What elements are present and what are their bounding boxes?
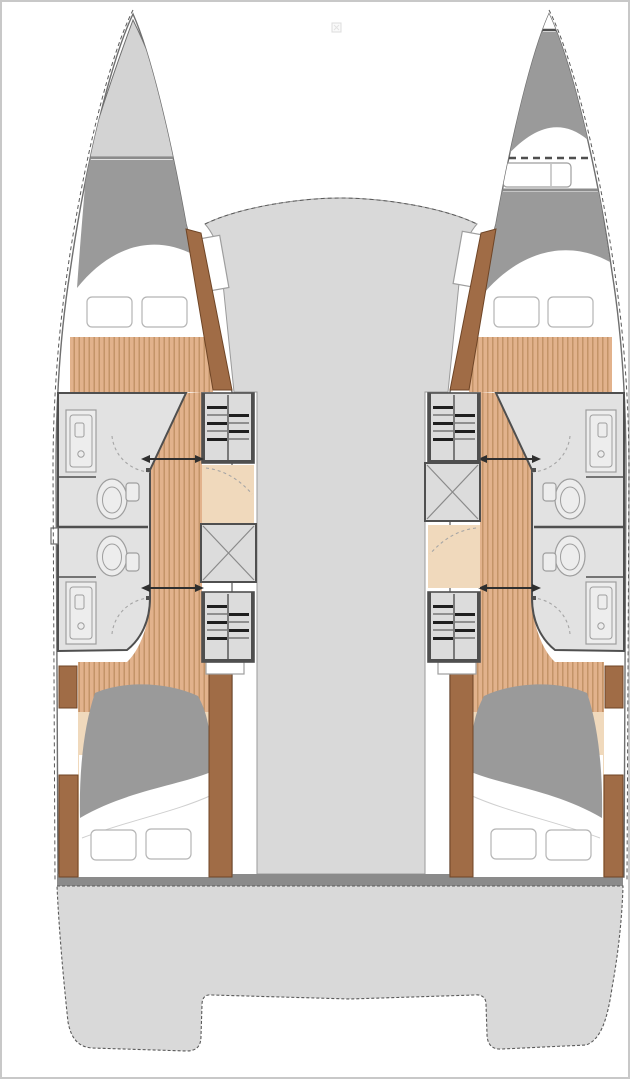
starboard-storage-locker-wrap [425, 463, 480, 521]
port-forward-pillow [87, 297, 132, 327]
bow-tip-cap [537, 13, 561, 30]
starboard-forward-companionway [428, 393, 480, 463]
starboard-aft-companionway [428, 592, 480, 662]
port-bow-deck [87, 20, 179, 157]
port-storage-locker [201, 524, 256, 582]
port-forward-companionway [202, 393, 254, 463]
starboard-forward-pillow [548, 297, 593, 327]
floor-plan-svg [0, 0, 630, 1080]
port-aft-cabin [59, 662, 244, 877]
starboard-aft-cabin [438, 662, 623, 877]
aft-platform [57, 886, 623, 1051]
starboard-forward-pillow [494, 297, 539, 327]
port-aft-companionway [202, 592, 254, 662]
starboard-landing [428, 525, 480, 588]
port-landing [202, 465, 254, 523]
deck-hatch [503, 163, 571, 187]
port-forward-pillow [142, 297, 187, 327]
catamaran-floor-plan [0, 0, 630, 1080]
image-placeholder-glyph [332, 23, 341, 32]
port-hull-fitting [51, 528, 58, 544]
starboard-storage-locker [425, 463, 480, 521]
